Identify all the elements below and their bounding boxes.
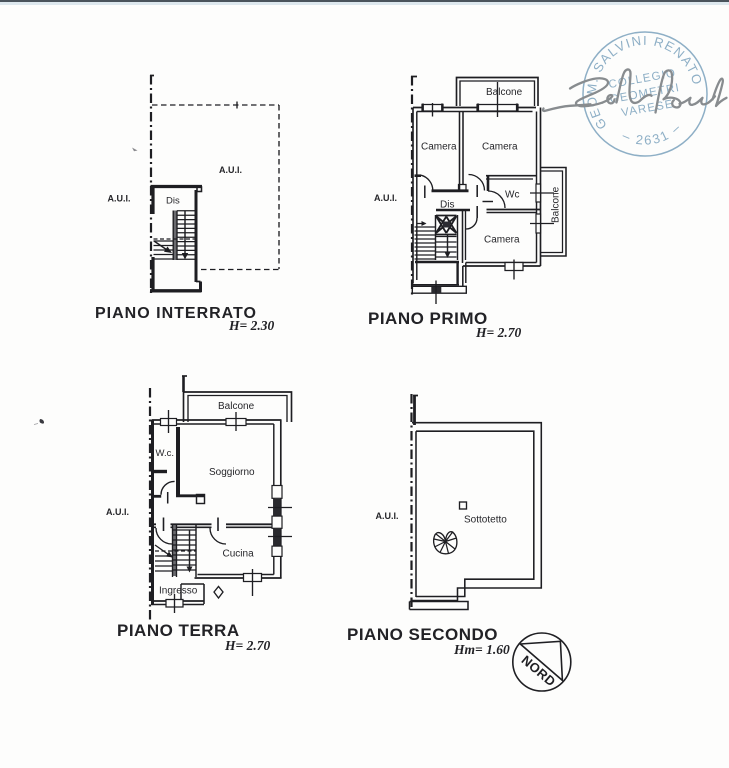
svg-text:Wc: Wc bbox=[505, 190, 519, 201]
svg-text:A.U.I.: A.U.I. bbox=[219, 165, 242, 175]
svg-text:Sottotetto: Sottotetto bbox=[464, 515, 507, 526]
svg-text:Balcone: Balcone bbox=[486, 87, 523, 98]
svg-text:Dis: Dis bbox=[440, 200, 454, 211]
svg-text:Cucina: Cucina bbox=[223, 549, 255, 560]
svg-text:H= 2.70: H= 2.70 bbox=[224, 638, 270, 653]
svg-text:A.U.I.: A.U.I. bbox=[106, 507, 129, 517]
svg-text:Camera: Camera bbox=[484, 235, 520, 246]
svg-text:Soggiorno: Soggiorno bbox=[209, 467, 255, 478]
svg-text:A.U.I.: A.U.I. bbox=[376, 511, 399, 521]
svg-text:PIANO TERRA: PIANO TERRA bbox=[117, 621, 240, 640]
svg-text:Balcone: Balcone bbox=[218, 401, 255, 412]
svg-text:PIANO PRIMO: PIANO PRIMO bbox=[368, 309, 488, 328]
svg-text:Camera: Camera bbox=[421, 142, 457, 153]
svg-text:Camera: Camera bbox=[482, 142, 518, 153]
svg-text:A.U.I.: A.U.I. bbox=[108, 194, 131, 204]
svg-text:W.c.: W.c. bbox=[156, 448, 174, 459]
svg-text:A.U.I.: A.U.I. bbox=[374, 193, 397, 203]
svg-text:Hm= 1.60: Hm= 1.60 bbox=[453, 642, 510, 657]
svg-text:Balcone: Balcone bbox=[551, 186, 562, 223]
svg-text:H= 2.70: H= 2.70 bbox=[475, 325, 521, 340]
svg-text:Dis: Dis bbox=[166, 196, 180, 207]
svg-text:H= 2.30: H= 2.30 bbox=[228, 318, 274, 333]
svg-text:Ingresso: Ingresso bbox=[159, 586, 198, 597]
